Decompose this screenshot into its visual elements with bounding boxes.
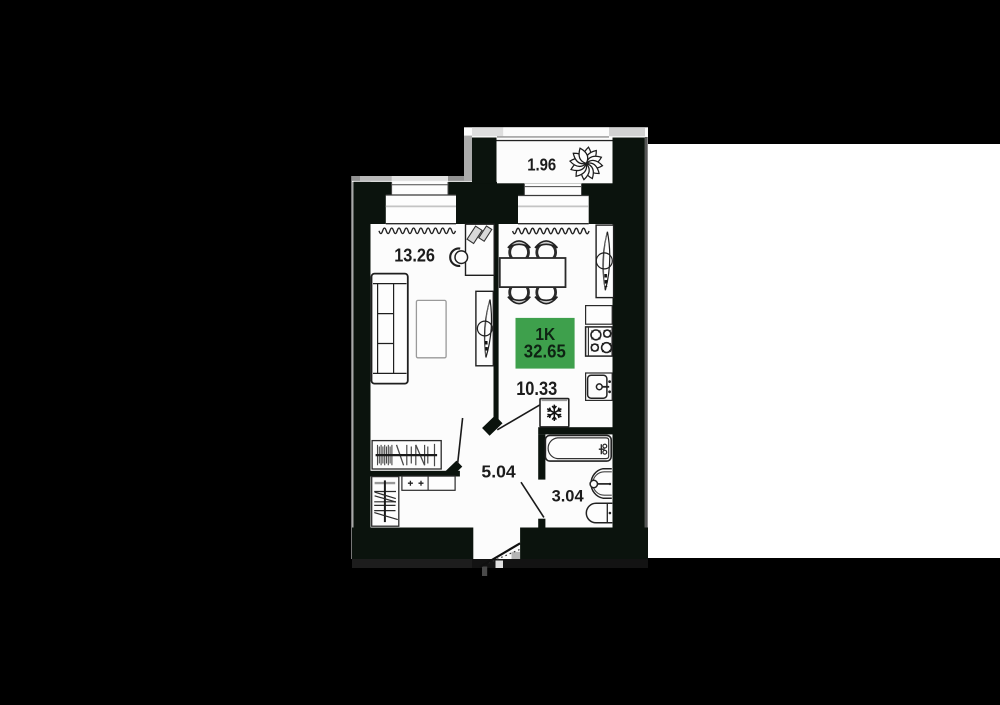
svg-text:5.04: 5.04 xyxy=(481,461,516,481)
svg-text:1.96: 1.96 xyxy=(527,154,556,174)
svg-text:3.04: 3.04 xyxy=(552,487,585,505)
svg-text:13.26: 13.26 xyxy=(394,245,435,266)
svg-text:32.65: 32.65 xyxy=(524,342,566,362)
svg-text:10.33: 10.33 xyxy=(516,379,557,400)
